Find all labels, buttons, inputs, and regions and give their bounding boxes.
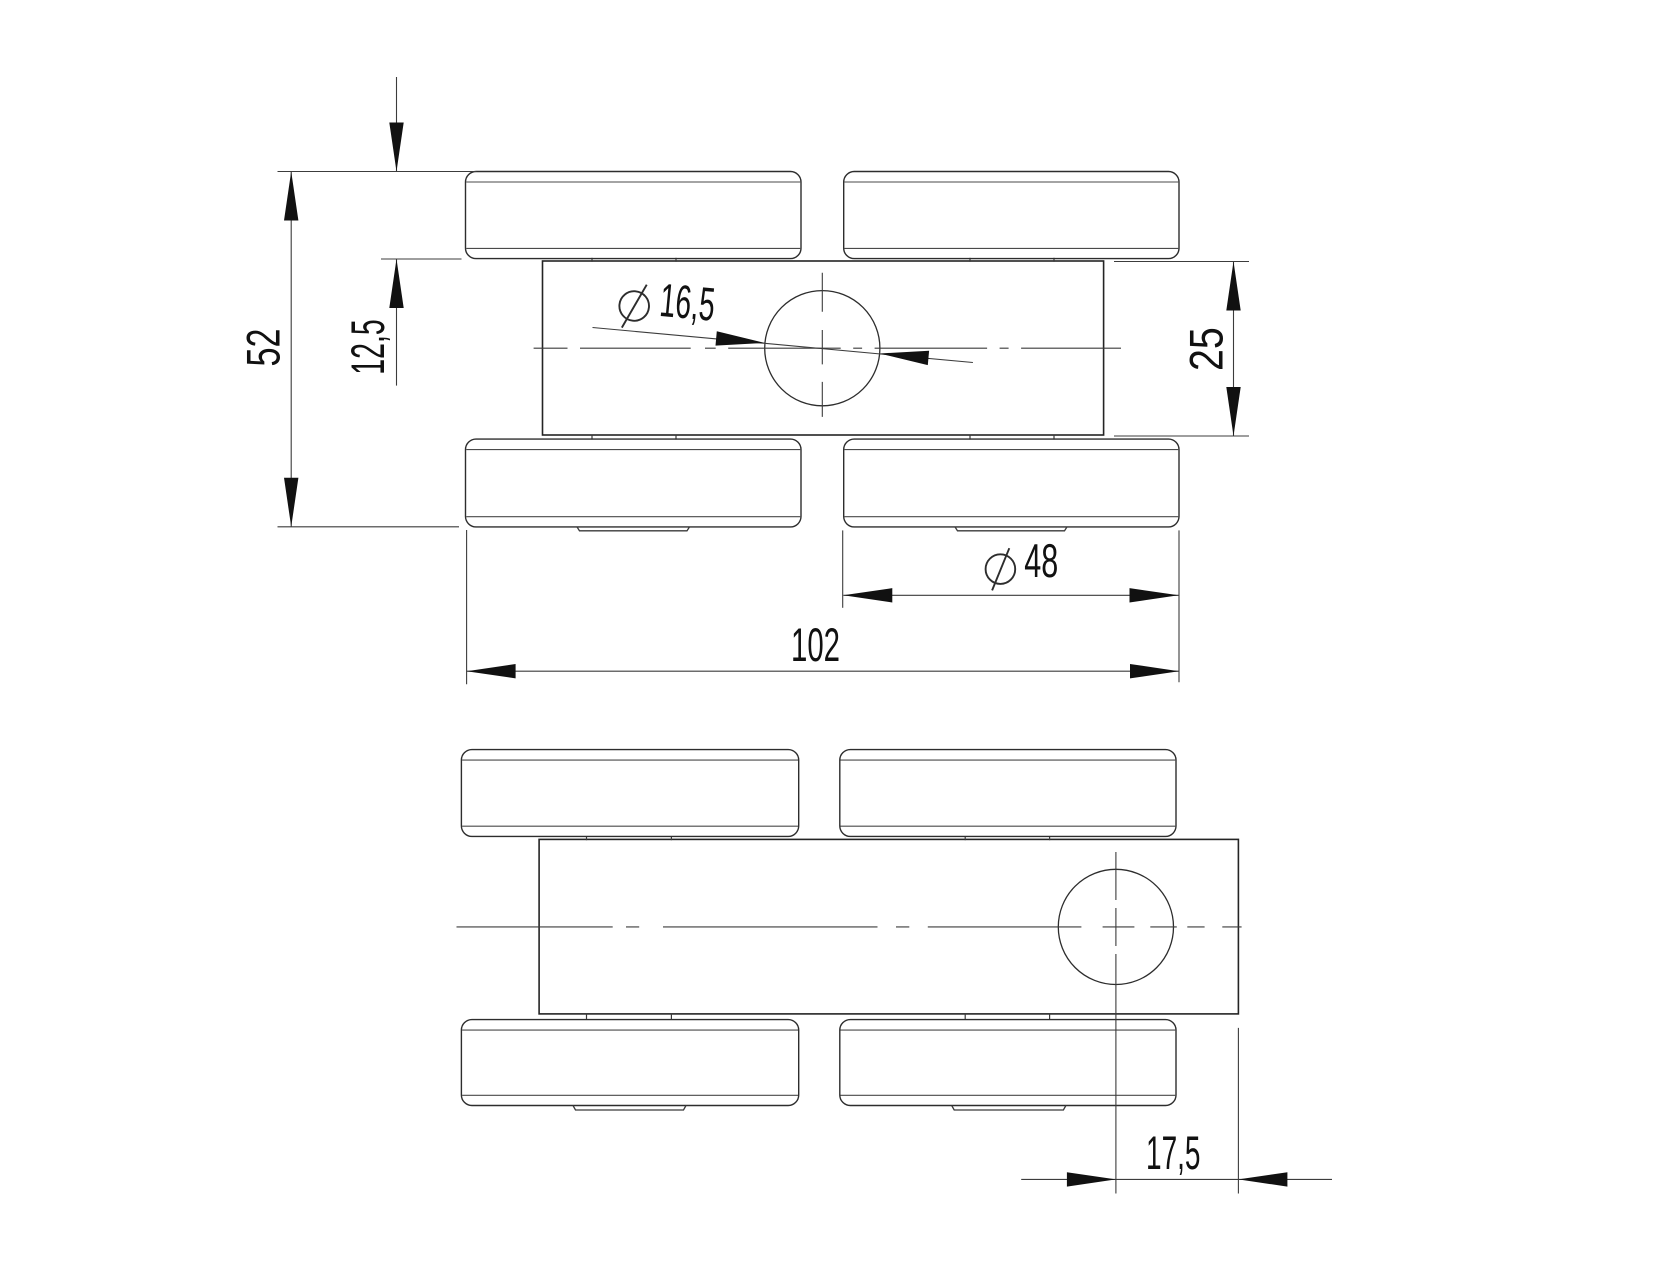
svg-text:52: 52: [237, 329, 290, 367]
svg-text:25: 25: [1180, 327, 1233, 371]
svg-text:48: 48: [1024, 534, 1058, 587]
svg-text:12,5: 12,5: [341, 319, 394, 375]
svg-text:16,5: 16,5: [658, 273, 718, 331]
svg-text:17,5: 17,5: [1146, 1126, 1201, 1179]
svg-text:102: 102: [791, 618, 840, 671]
